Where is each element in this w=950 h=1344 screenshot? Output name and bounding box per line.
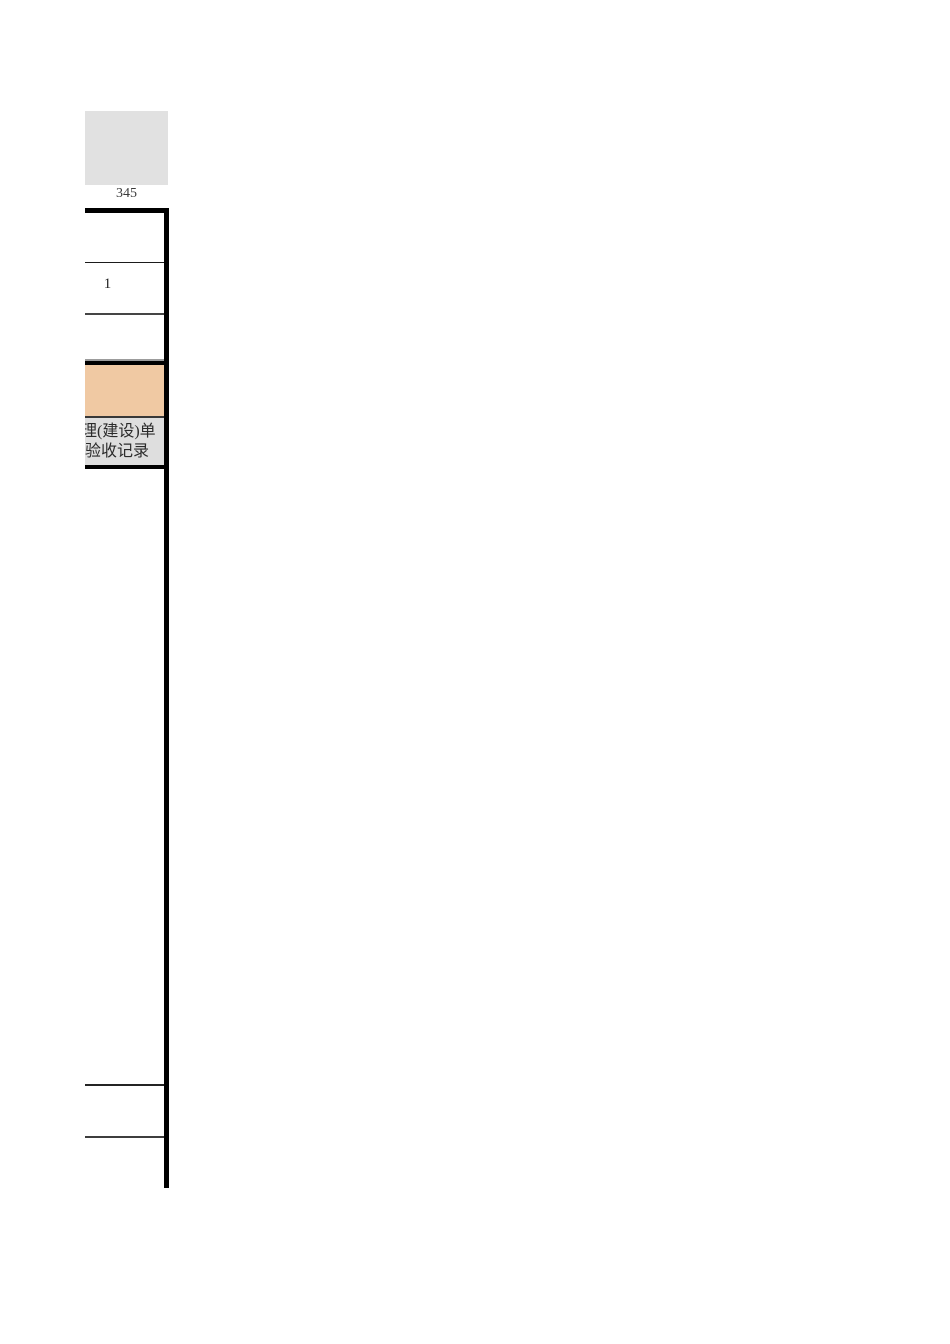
table-right-border bbox=[164, 208, 169, 1188]
table-cell-empty-top[interactable] bbox=[85, 213, 164, 261]
table-cell-empty-bottom-2[interactable] bbox=[85, 1138, 164, 1188]
acceptance-record-text-line1: 理(建设)单 bbox=[85, 422, 164, 442]
cell-value-345: 345 bbox=[85, 186, 168, 204]
acceptance-record-text-line2: 验收记录 bbox=[85, 442, 164, 462]
filled-cell-block[interactable] bbox=[85, 111, 168, 185]
spreadsheet-page: 345 1 理(建设)单 验收记录 bbox=[0, 0, 950, 1344]
row-separator-5 bbox=[85, 465, 164, 469]
table-cell-empty-bottom-1[interactable] bbox=[85, 1086, 164, 1135]
table-cell-serial[interactable]: 1 bbox=[85, 263, 164, 312]
table-cell-acceptance-record[interactable]: 理(建设)单 验收记录 bbox=[85, 418, 164, 465]
table-cell-empty-mid[interactable] bbox=[85, 315, 164, 359]
table-cell-orange-fill[interactable] bbox=[85, 365, 164, 416]
serial-number-value: 1 bbox=[85, 276, 130, 293]
